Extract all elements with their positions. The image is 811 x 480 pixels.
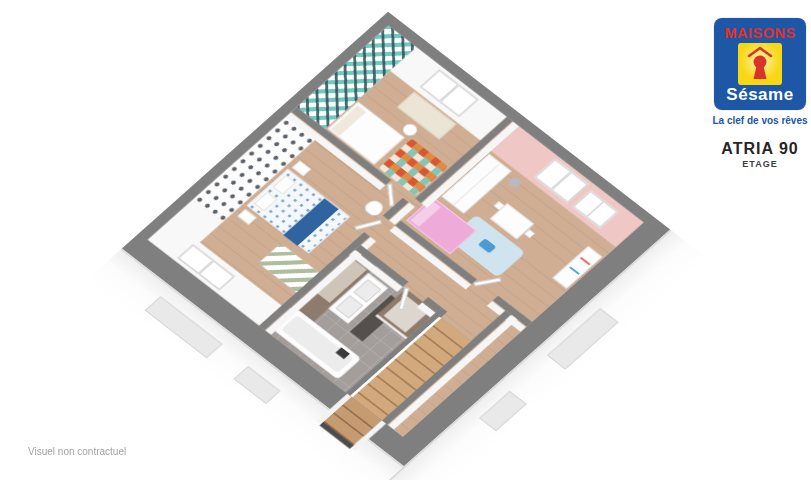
plan-level: ETAGE	[703, 159, 811, 169]
page: MAISONS Sésame La clef de vos rêves ATRI…	[0, 0, 811, 480]
floorplan-3d-view	[122, 12, 670, 467]
plan-title: ATRIA 90	[703, 140, 811, 158]
maisons-sesame-logo: MAISONS Sésame	[714, 18, 806, 110]
disclaimer-text: Visuel non contractuel	[28, 446, 126, 457]
keyhole-icon	[738, 43, 782, 85]
brand-tagline: La clef de vos rêves	[703, 115, 811, 126]
facade-window	[233, 366, 280, 404]
logo-brand-top: MAISONS	[714, 25, 806, 41]
facade-window	[479, 391, 527, 431]
branding-block: MAISONS Sésame La clef de vos rêves ATRI…	[703, 18, 811, 169]
logo-yellow-square	[738, 43, 782, 85]
exterior-wall-tops	[122, 12, 670, 467]
logo-brand-bottom: Sésame	[714, 85, 806, 105]
